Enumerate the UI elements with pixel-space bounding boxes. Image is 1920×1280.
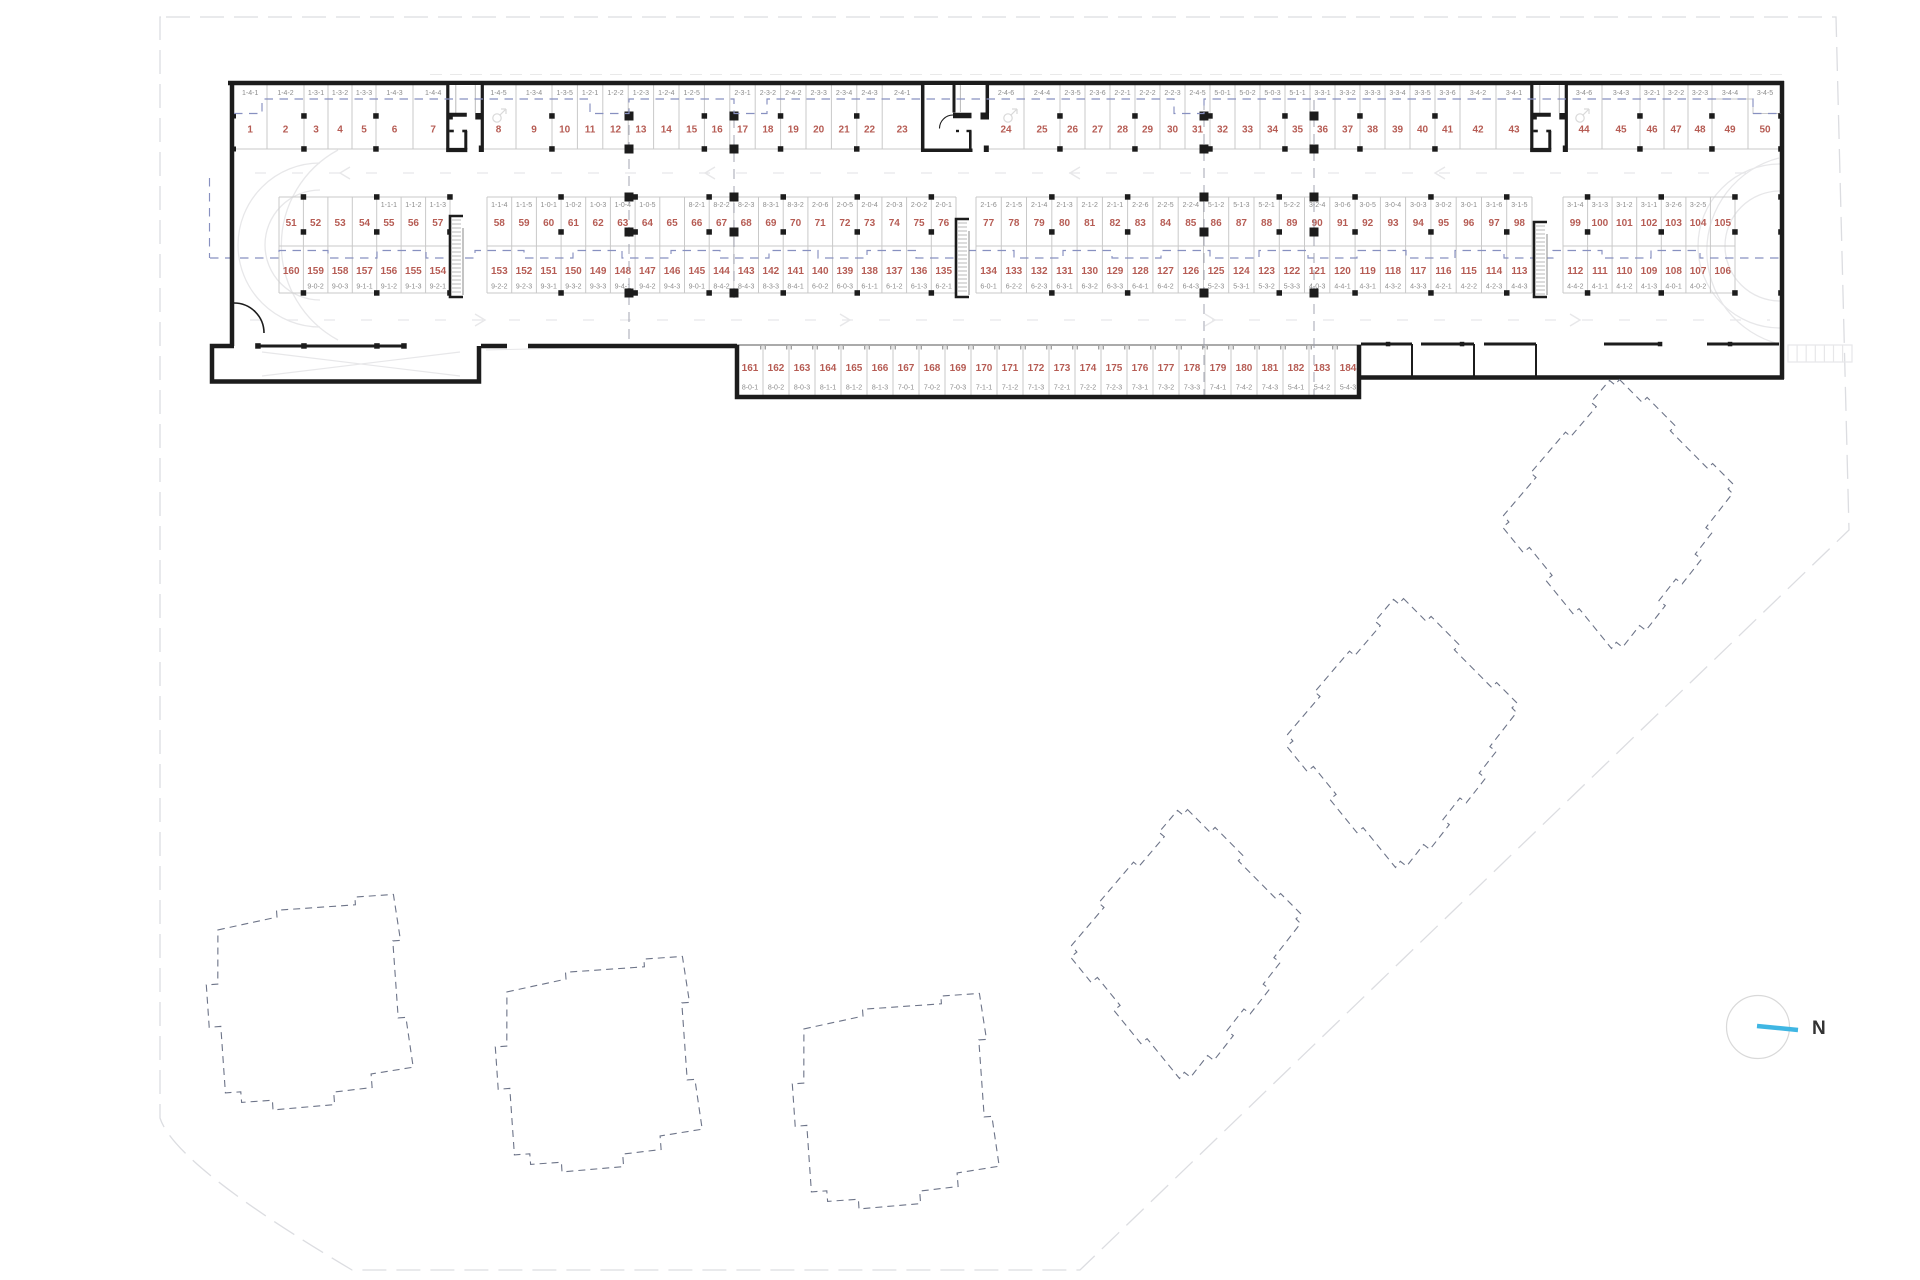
svg-text:165: 165	[846, 363, 863, 374]
svg-text:3-3-5: 3-3-5	[1414, 90, 1430, 97]
svg-text:5-2-1: 5-2-1	[1258, 202, 1274, 209]
svg-text:176: 176	[1132, 363, 1149, 374]
svg-text:7-4-1: 7-4-1	[1210, 385, 1226, 392]
svg-text:163: 163	[794, 363, 811, 374]
svg-text:160: 160	[283, 266, 300, 277]
svg-text:5-4-2: 5-4-2	[1314, 385, 1330, 392]
svg-text:7-1-3: 7-1-3	[1028, 385, 1044, 392]
svg-text:6-4-3: 6-4-3	[1183, 284, 1199, 291]
svg-text:10: 10	[559, 125, 571, 136]
svg-text:2-1-2: 2-1-2	[1082, 202, 1098, 209]
svg-text:5-4-1: 5-4-1	[1288, 385, 1304, 392]
svg-text:82: 82	[1109, 218, 1121, 229]
svg-text:2-0-1: 2-0-1	[936, 202, 952, 209]
svg-text:9: 9	[531, 125, 537, 136]
svg-text:40: 40	[1417, 125, 1429, 136]
svg-text:1-3-1: 1-3-1	[308, 90, 324, 97]
svg-text:135: 135	[935, 266, 952, 277]
svg-text:2-2-5: 2-2-5	[1157, 202, 1173, 209]
svg-text:2-2-4: 2-2-4	[1183, 202, 1199, 209]
svg-text:1-2-3: 1-2-3	[633, 90, 649, 97]
svg-text:77: 77	[983, 218, 995, 229]
svg-text:7-4-3: 7-4-3	[1262, 385, 1278, 392]
svg-text:115: 115	[1461, 266, 1478, 277]
svg-text:3-4-5: 3-4-5	[1757, 90, 1773, 97]
svg-text:78: 78	[1008, 218, 1020, 229]
svg-text:4-2-3: 4-2-3	[1486, 284, 1502, 291]
svg-text:174: 174	[1080, 363, 1097, 374]
svg-text:53: 53	[335, 218, 347, 229]
svg-text:1-1-4: 1-1-4	[491, 202, 507, 209]
svg-text:5-1-3: 5-1-3	[1233, 202, 1249, 209]
svg-text:45: 45	[1615, 125, 1627, 136]
svg-text:99: 99	[1570, 218, 1582, 229]
svg-text:173: 173	[1054, 363, 1071, 374]
svg-text:182: 182	[1288, 363, 1305, 374]
svg-text:2-3-5: 2-3-5	[1064, 90, 1080, 97]
svg-text:2-0-5: 2-0-5	[837, 202, 853, 209]
svg-text:149: 149	[590, 266, 607, 277]
svg-text:6-2-1: 6-2-1	[936, 284, 952, 291]
svg-text:119: 119	[1360, 266, 1377, 277]
svg-text:1-2-5: 1-2-5	[684, 90, 700, 97]
svg-text:25: 25	[1036, 125, 1048, 136]
svg-text:4-2-2: 4-2-2	[1461, 284, 1477, 291]
svg-text:159: 159	[307, 266, 324, 277]
svg-text:4-4-1: 4-4-1	[1334, 284, 1350, 291]
svg-text:23: 23	[897, 125, 909, 136]
svg-text:66: 66	[691, 218, 703, 229]
svg-text:67: 67	[716, 218, 728, 229]
svg-text:16: 16	[712, 125, 724, 136]
svg-text:6-3-2: 6-3-2	[1082, 284, 1098, 291]
svg-text:74: 74	[889, 218, 901, 229]
svg-text:75: 75	[913, 218, 925, 229]
svg-text:11: 11	[585, 125, 596, 136]
svg-text:136: 136	[911, 266, 928, 277]
svg-text:13: 13	[635, 125, 647, 136]
svg-text:118: 118	[1385, 266, 1402, 277]
svg-text:8-3-2: 8-3-2	[787, 202, 803, 209]
svg-text:7-4-2: 7-4-2	[1236, 385, 1252, 392]
svg-text:5-2-3: 5-2-3	[1208, 284, 1224, 291]
svg-text:9-3-3: 9-3-3	[590, 284, 606, 291]
svg-text:89: 89	[1286, 218, 1298, 229]
svg-text:2-0-2: 2-0-2	[911, 202, 927, 209]
svg-text:3-1-5: 3-1-5	[1511, 202, 1527, 209]
svg-text:27: 27	[1092, 125, 1104, 136]
svg-text:24: 24	[1000, 125, 1012, 136]
svg-text:64: 64	[642, 218, 654, 229]
svg-text:28: 28	[1117, 125, 1129, 136]
svg-text:4: 4	[337, 125, 343, 136]
svg-text:59: 59	[518, 218, 530, 229]
svg-text:125: 125	[1208, 266, 1225, 277]
svg-text:133: 133	[1006, 266, 1023, 277]
svg-text:49: 49	[1724, 125, 1736, 136]
svg-text:8-1-2: 8-1-2	[846, 385, 862, 392]
svg-text:6-2-3: 6-2-3	[1031, 284, 1047, 291]
svg-text:4-1-2: 4-1-2	[1616, 284, 1632, 291]
svg-text:151: 151	[540, 266, 557, 277]
svg-text:3-2-4: 3-2-4	[1309, 202, 1325, 209]
svg-text:5-3-3: 5-3-3	[1284, 284, 1300, 291]
svg-text:8-0-2: 8-0-2	[768, 385, 784, 392]
svg-text:4-3-3: 4-3-3	[1410, 284, 1426, 291]
svg-text:123: 123	[1258, 266, 1275, 277]
svg-text:33: 33	[1242, 125, 1254, 136]
svg-text:112: 112	[1567, 266, 1584, 277]
svg-text:38: 38	[1367, 125, 1379, 136]
svg-text:130: 130	[1081, 266, 1098, 277]
svg-text:9-1-2: 9-1-2	[381, 284, 397, 291]
svg-text:150: 150	[565, 266, 582, 277]
svg-text:126: 126	[1182, 266, 1199, 277]
svg-text:111: 111	[1592, 266, 1608, 277]
svg-text:91: 91	[1337, 218, 1349, 229]
svg-text:1-1-5: 1-1-5	[516, 202, 532, 209]
svg-text:1-2-4: 1-2-4	[658, 90, 674, 97]
svg-text:1-2-2: 1-2-2	[607, 90, 623, 97]
svg-text:87: 87	[1236, 218, 1248, 229]
svg-text:57: 57	[432, 218, 444, 229]
svg-text:1-1-1: 1-1-1	[381, 202, 397, 209]
svg-text:8-2-2: 8-2-2	[713, 202, 729, 209]
svg-text:56: 56	[408, 218, 420, 229]
svg-text:70: 70	[790, 218, 802, 229]
svg-text:8-1-1: 8-1-1	[820, 385, 836, 392]
svg-text:51: 51	[286, 218, 298, 229]
svg-text:2-2-3: 2-2-3	[1164, 90, 1180, 97]
svg-text:132: 132	[1031, 266, 1048, 277]
svg-text:6-0-3: 6-0-3	[837, 284, 853, 291]
svg-text:183: 183	[1314, 363, 1331, 374]
svg-text:6-0-1: 6-0-1	[980, 284, 996, 291]
svg-text:105: 105	[1714, 218, 1731, 229]
svg-text:4-0-2: 4-0-2	[1690, 284, 1706, 291]
svg-text:184: 184	[1340, 363, 1357, 374]
svg-text:41: 41	[1442, 125, 1454, 136]
svg-text:14: 14	[661, 125, 673, 136]
svg-text:85: 85	[1185, 218, 1197, 229]
svg-text:35: 35	[1292, 125, 1304, 136]
svg-text:3-0-5: 3-0-5	[1360, 202, 1376, 209]
svg-text:9-2-2: 9-2-2	[491, 284, 507, 291]
svg-text:6-2-2: 6-2-2	[1006, 284, 1022, 291]
svg-text:161: 161	[742, 363, 759, 374]
svg-text:2-0-4: 2-0-4	[861, 202, 877, 209]
svg-text:8: 8	[496, 125, 502, 136]
svg-text:5-1-1: 5-1-1	[1289, 90, 1305, 97]
svg-text:8-3-1: 8-3-1	[763, 202, 779, 209]
svg-text:50: 50	[1759, 125, 1771, 136]
svg-text:2-2-6: 2-2-6	[1132, 202, 1148, 209]
svg-text:7-3-1: 7-3-1	[1132, 385, 1148, 392]
svg-text:8-3-3: 8-3-3	[763, 284, 779, 291]
svg-text:143: 143	[738, 266, 755, 277]
svg-text:7-3-2: 7-3-2	[1158, 385, 1174, 392]
svg-text:N: N	[1812, 1018, 1826, 1039]
svg-text:3-4-3: 3-4-3	[1613, 90, 1629, 97]
svg-text:113: 113	[1511, 266, 1528, 277]
svg-text:153: 153	[491, 266, 508, 277]
svg-text:3-1-6: 3-1-6	[1486, 202, 1502, 209]
svg-text:7-2-2: 7-2-2	[1080, 385, 1096, 392]
svg-text:2-1-4: 2-1-4	[1031, 202, 1047, 209]
svg-text:178: 178	[1184, 363, 1201, 374]
svg-text:72: 72	[839, 218, 851, 229]
svg-text:5-0-2: 5-0-2	[1239, 90, 1255, 97]
svg-text:80: 80	[1059, 218, 1071, 229]
svg-text:2-0-3: 2-0-3	[886, 202, 902, 209]
svg-text:5-2-2: 5-2-2	[1284, 202, 1300, 209]
svg-text:31: 31	[1192, 125, 1204, 136]
svg-text:4-1-1: 4-1-1	[1592, 284, 1608, 291]
svg-text:169: 169	[950, 363, 967, 374]
svg-text:37: 37	[1342, 125, 1354, 136]
svg-text:164: 164	[820, 363, 837, 374]
svg-text:2-3-2: 2-3-2	[760, 90, 776, 97]
svg-text:2-2-2: 2-2-2	[1139, 90, 1155, 97]
svg-text:6-1-3: 6-1-3	[911, 284, 927, 291]
svg-text:8-2-3: 8-2-3	[738, 202, 754, 209]
svg-text:8-4-2: 8-4-2	[713, 284, 729, 291]
svg-text:92: 92	[1362, 218, 1374, 229]
svg-text:3-3-4: 3-3-4	[1389, 90, 1405, 97]
svg-text:7-2-1: 7-2-1	[1054, 385, 1070, 392]
svg-text:94: 94	[1413, 218, 1425, 229]
svg-text:1-0-3: 1-0-3	[590, 202, 606, 209]
svg-text:3-4-2: 3-4-2	[1470, 90, 1486, 97]
svg-text:1-0-2: 1-0-2	[565, 202, 581, 209]
svg-text:110: 110	[1616, 266, 1633, 277]
svg-text:54: 54	[359, 218, 371, 229]
svg-text:9-2-1: 9-2-1	[430, 284, 446, 291]
svg-text:1-4-1: 1-4-1	[242, 90, 258, 97]
svg-text:2-3-6: 2-3-6	[1089, 90, 1105, 97]
svg-text:2-1-1: 2-1-1	[1107, 202, 1123, 209]
svg-text:5-3-1: 5-3-1	[1233, 284, 1249, 291]
svg-text:3-3-3: 3-3-3	[1364, 90, 1380, 97]
svg-text:86: 86	[1211, 218, 1223, 229]
svg-text:5-1-2: 5-1-2	[1208, 202, 1224, 209]
svg-text:7-0-2: 7-0-2	[924, 385, 940, 392]
svg-text:6-3-1: 6-3-1	[1056, 284, 1072, 291]
svg-text:145: 145	[688, 266, 705, 277]
svg-text:69: 69	[765, 218, 777, 229]
svg-text:1-3-3: 1-3-3	[356, 90, 372, 97]
svg-text:172: 172	[1028, 363, 1045, 374]
svg-text:139: 139	[837, 266, 854, 277]
svg-text:147: 147	[639, 266, 656, 277]
svg-text:7-2-3: 7-2-3	[1106, 385, 1122, 392]
svg-text:140: 140	[812, 266, 829, 277]
svg-text:2-1-3: 2-1-3	[1056, 202, 1072, 209]
svg-text:3-0-6: 3-0-6	[1334, 202, 1350, 209]
svg-text:9-0-1: 9-0-1	[689, 284, 705, 291]
svg-text:8-0-1: 8-0-1	[742, 385, 758, 392]
svg-text:9-0-2: 9-0-2	[307, 284, 323, 291]
svg-text:104: 104	[1690, 218, 1707, 229]
svg-text:2-4-4: 2-4-4	[1034, 90, 1050, 97]
svg-text:116: 116	[1435, 266, 1452, 277]
svg-text:3-2-6: 3-2-6	[1665, 202, 1681, 209]
svg-text:134: 134	[980, 266, 997, 277]
svg-text:22: 22	[864, 125, 876, 136]
svg-text:127: 127	[1157, 266, 1174, 277]
svg-text:55: 55	[383, 218, 395, 229]
svg-text:3-0-1: 3-0-1	[1461, 202, 1477, 209]
svg-text:162: 162	[768, 363, 785, 374]
svg-text:3-2-2: 3-2-2	[1668, 90, 1684, 97]
svg-text:141: 141	[787, 266, 804, 277]
svg-text:6-4-2: 6-4-2	[1157, 284, 1173, 291]
svg-text:1-0-1: 1-0-1	[541, 202, 557, 209]
svg-text:2-0-6: 2-0-6	[812, 202, 828, 209]
svg-text:1-0-5: 1-0-5	[639, 202, 655, 209]
svg-text:108: 108	[1665, 266, 1682, 277]
svg-text:3-0-3: 3-0-3	[1410, 202, 1426, 209]
svg-text:109: 109	[1641, 266, 1658, 277]
svg-text:2-4-6: 2-4-6	[998, 90, 1014, 97]
svg-text:102: 102	[1641, 218, 1658, 229]
svg-text:1-1-2: 1-1-2	[405, 202, 421, 209]
svg-text:71: 71	[815, 218, 827, 229]
svg-text:2-3-1: 2-3-1	[734, 90, 750, 97]
svg-text:2-4-5: 2-4-5	[1189, 90, 1205, 97]
svg-text:1: 1	[247, 125, 253, 136]
svg-text:1-4-3: 1-4-3	[386, 90, 402, 97]
svg-text:36: 36	[1317, 125, 1329, 136]
svg-text:9-1-1: 9-1-1	[356, 284, 372, 291]
svg-text:68: 68	[741, 218, 753, 229]
svg-text:39: 39	[1392, 125, 1404, 136]
svg-text:44: 44	[1578, 125, 1590, 136]
svg-text:124: 124	[1233, 266, 1250, 277]
svg-text:3: 3	[313, 125, 319, 136]
svg-text:1-4-5: 1-4-5	[490, 90, 506, 97]
svg-text:2-1-5: 2-1-5	[1006, 202, 1022, 209]
svg-text:9-0-3: 9-0-3	[332, 284, 348, 291]
svg-text:2-3-3: 2-3-3	[811, 90, 827, 97]
svg-text:6: 6	[392, 125, 398, 136]
svg-text:2: 2	[283, 125, 289, 136]
svg-text:3-4-4: 3-4-4	[1722, 90, 1738, 97]
svg-text:96: 96	[1463, 218, 1475, 229]
svg-text:6-4-1: 6-4-1	[1132, 284, 1148, 291]
svg-text:15: 15	[686, 125, 698, 136]
svg-text:144: 144	[713, 266, 730, 277]
svg-text:62: 62	[593, 218, 605, 229]
svg-text:93: 93	[1387, 218, 1399, 229]
svg-text:63: 63	[617, 218, 629, 229]
svg-text:4-0-1: 4-0-1	[1665, 284, 1681, 291]
svg-text:152: 152	[516, 266, 533, 277]
svg-text:2-4-3: 2-4-3	[861, 90, 877, 97]
svg-text:122: 122	[1284, 266, 1301, 277]
svg-text:106: 106	[1714, 266, 1731, 277]
svg-text:73: 73	[864, 218, 876, 229]
svg-text:3-2-5: 3-2-5	[1690, 202, 1706, 209]
svg-text:79: 79	[1034, 218, 1046, 229]
svg-text:61: 61	[568, 218, 580, 229]
svg-text:6-1-2: 6-1-2	[886, 284, 902, 291]
svg-text:2-4-2: 2-4-2	[785, 90, 801, 97]
svg-text:17: 17	[737, 125, 749, 136]
svg-text:3-1-2: 3-1-2	[1616, 202, 1632, 209]
svg-text:101: 101	[1616, 218, 1633, 229]
svg-text:1-1-3: 1-1-3	[430, 202, 446, 209]
svg-text:34: 34	[1267, 125, 1279, 136]
svg-text:26: 26	[1067, 125, 1079, 136]
svg-text:3-3-6: 3-3-6	[1439, 90, 1455, 97]
svg-text:1-0-4: 1-0-4	[615, 202, 631, 209]
svg-text:65: 65	[667, 218, 679, 229]
svg-text:6-0-2: 6-0-2	[812, 284, 828, 291]
svg-text:155: 155	[405, 266, 422, 277]
svg-text:97: 97	[1489, 218, 1501, 229]
svg-text:4-4-3: 4-4-3	[1511, 284, 1527, 291]
svg-text:4-2-1: 4-2-1	[1435, 284, 1451, 291]
svg-text:3-4-6: 3-4-6	[1576, 90, 1592, 97]
svg-text:7: 7	[430, 125, 436, 136]
svg-text:84: 84	[1160, 218, 1172, 229]
svg-text:9-4-2: 9-4-2	[639, 284, 655, 291]
svg-text:156: 156	[381, 266, 398, 277]
svg-text:107: 107	[1690, 266, 1707, 277]
svg-text:5-4-3: 5-4-3	[1340, 385, 1356, 392]
svg-text:9-2-3: 9-2-3	[516, 284, 532, 291]
svg-text:98: 98	[1514, 218, 1526, 229]
svg-text:7-1-1: 7-1-1	[976, 385, 992, 392]
svg-text:9-3-2: 9-3-2	[565, 284, 581, 291]
svg-text:5-0-3: 5-0-3	[1264, 90, 1280, 97]
svg-text:2-3-4: 2-3-4	[836, 90, 852, 97]
svg-text:167: 167	[898, 363, 915, 374]
svg-text:154: 154	[429, 266, 446, 277]
svg-text:175: 175	[1106, 363, 1123, 374]
svg-text:166: 166	[872, 363, 889, 374]
svg-text:8-4-1: 8-4-1	[787, 284, 803, 291]
svg-text:83: 83	[1135, 218, 1147, 229]
svg-text:47: 47	[1670, 125, 1682, 136]
svg-text:3-0-4: 3-0-4	[1385, 202, 1401, 209]
svg-text:157: 157	[356, 266, 373, 277]
svg-text:1-4-4: 1-4-4	[425, 90, 441, 97]
svg-text:52: 52	[310, 218, 322, 229]
svg-text:8-2-1: 8-2-1	[689, 202, 705, 209]
svg-text:9-4-3: 9-4-3	[664, 284, 680, 291]
svg-text:3-1-1: 3-1-1	[1641, 202, 1657, 209]
svg-text:95: 95	[1438, 218, 1450, 229]
svg-text:1-2-1: 1-2-1	[582, 90, 598, 97]
svg-text:120: 120	[1334, 266, 1351, 277]
svg-text:8-4-3: 8-4-3	[738, 284, 754, 291]
svg-text:88: 88	[1261, 218, 1273, 229]
svg-text:2-4-1: 2-4-1	[894, 90, 910, 97]
svg-text:7-0-1: 7-0-1	[898, 385, 914, 392]
svg-text:4-3-2: 4-3-2	[1385, 284, 1401, 291]
svg-text:48: 48	[1694, 125, 1706, 136]
svg-text:3-4-1: 3-4-1	[1506, 90, 1522, 97]
svg-text:29: 29	[1142, 125, 1154, 136]
svg-text:20: 20	[813, 125, 825, 136]
svg-text:121: 121	[1309, 266, 1326, 277]
svg-text:81: 81	[1084, 218, 1096, 229]
svg-text:168: 168	[924, 363, 941, 374]
svg-text:4-3-1: 4-3-1	[1360, 284, 1376, 291]
svg-text:90: 90	[1312, 218, 1324, 229]
